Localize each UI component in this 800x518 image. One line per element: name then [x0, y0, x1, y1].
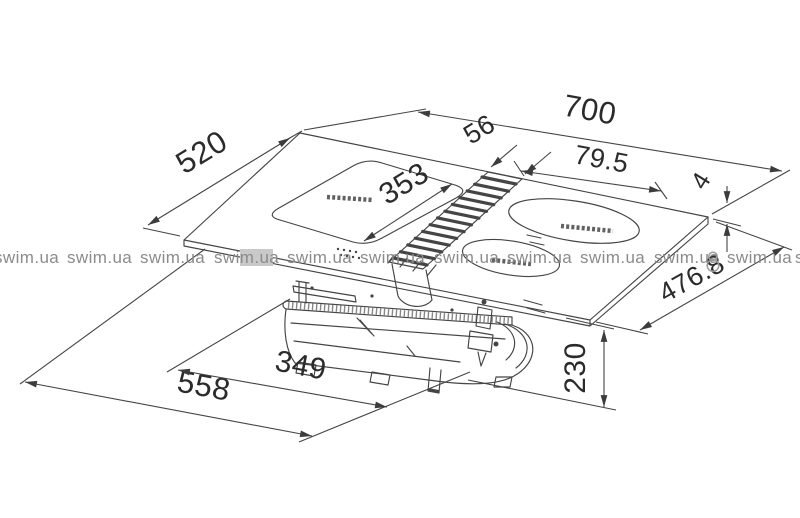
dim-353-label: 353: [373, 156, 434, 211]
dim-349-label: 349: [272, 345, 329, 387]
dimension-4: 4: [686, 167, 741, 252]
technical-drawing: 700 520 353 56 79.5 4 476.8 558: [0, 0, 800, 518]
cooking-zone-rear-right: [506, 191, 643, 251]
pan-position-mark: [561, 226, 613, 231]
dimension-558: 558: [20, 249, 312, 436]
watermark-text: swim.ua: [287, 248, 352, 267]
watermark-text: swim.ua: [214, 248, 279, 267]
dimension-700: 700: [304, 88, 790, 214]
watermark-text: swim.ua: [795, 248, 800, 267]
drawing-page: 700 520 353 56 79.5 4 476.8 558: [0, 0, 800, 518]
dim-700-label: 700: [561, 88, 620, 132]
cooking-zone-left: [272, 161, 463, 243]
watermark-text: swim.ua: [360, 248, 425, 267]
watermark-text: swim.ua: [434, 248, 499, 267]
dim-520-label: 520: [170, 123, 234, 181]
watermark-text: swim.ua: [140, 248, 205, 267]
watermark-text: swim.ua: [727, 248, 792, 267]
dimension-353: 353: [364, 156, 452, 241]
dimension-56: 56: [458, 108, 551, 174]
dimension-476-8: 476.8: [596, 222, 792, 334]
watermark-text: swim.ua: [507, 248, 572, 267]
dimension-230: 230: [468, 318, 616, 410]
dim-4-label: 4: [686, 167, 717, 194]
dim-56-label: 56: [458, 108, 500, 150]
pan-position-mark: [327, 197, 373, 200]
dim-558-label: 558: [175, 364, 234, 408]
watermark-text: swim.ua: [580, 248, 645, 267]
watermark-text: swim.ua: [67, 248, 132, 267]
watermark-text: swim.ua: [0, 248, 59, 267]
dim-230-label: 230: [559, 342, 592, 394]
valve-assembly: [468, 300, 499, 367]
